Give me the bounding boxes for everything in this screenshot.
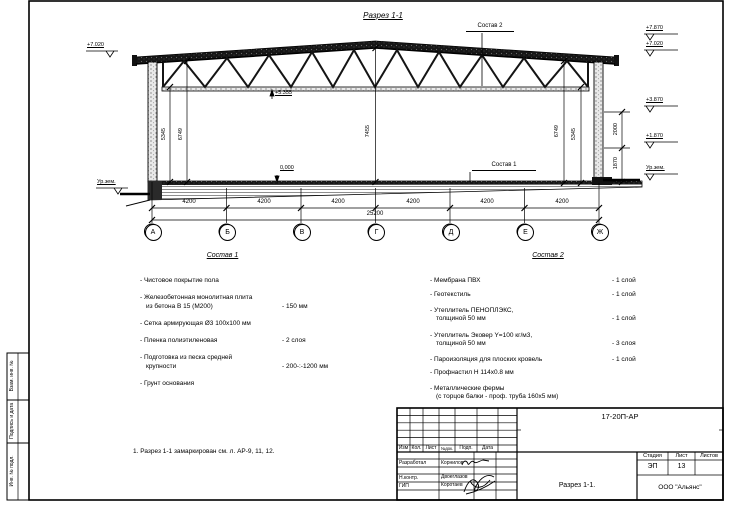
sostav2-item-line2: толщиной 50 мм: [436, 340, 486, 347]
axis-bubble-b: Б: [219, 224, 236, 241]
sostav2-item-value: - 1 слой: [612, 291, 636, 298]
dim-v-right-2: 5345: [571, 114, 577, 154]
dim-span-4: 4200: [393, 199, 433, 206]
tb-name: Коротаев: [441, 483, 463, 489]
tb-name: Двоеглазов: [441, 475, 468, 481]
sostav1-item: - Подготовка из песка средней: [140, 354, 232, 361]
axis-bubble-zh: Ж: [592, 224, 609, 241]
callout-floor-label: Состав 1: [472, 162, 536, 171]
sostav1-title: Состав 1: [150, 252, 295, 260]
sostav2-item-line2: толщиной 50 мм: [436, 315, 486, 322]
sostav2-item: - Геотекстиль: [430, 291, 471, 298]
tb-name: Корнилов: [441, 461, 463, 467]
sheet-frame: [7, 1, 723, 500]
dim-span-3: 4200: [318, 199, 358, 206]
tb-header-podp: Подп.: [455, 446, 477, 452]
dim-v-center: 7455: [365, 111, 371, 151]
tb-header-kol: Кол.: [410, 446, 423, 452]
dim-span-6: 4200: [542, 199, 582, 206]
sostav1-item-line2: крупности: [146, 363, 176, 370]
section-title: Разрез 1-1: [343, 11, 423, 20]
sostav2-item-value: - 3 слоя: [612, 340, 636, 347]
tb-role: Разработал: [399, 461, 426, 467]
sostav2-item-value: - 1 слой: [612, 315, 636, 322]
axis-bubble-v: В: [294, 224, 311, 241]
sostav2-item: - Профнастил Н 114х0.8 мм: [430, 369, 514, 376]
axis-bubble-g: Г: [368, 224, 385, 241]
tb-sheet-label: Лист: [668, 453, 695, 459]
dim-span-2: 4200: [244, 199, 284, 206]
elevation-right-4: +1.870: [646, 133, 663, 139]
frame-label-inv: Инв. № подл.: [10, 447, 16, 493]
dim-v-right-1: 6749: [554, 111, 560, 151]
axis-bubble-d: Д: [443, 224, 460, 241]
elevation-truss-bottom: +5.355: [275, 90, 292, 96]
tb-sheet-value: 13: [668, 463, 695, 471]
sostav2-item: - Утеплитель Эковер Y=100 кг/м3,: [430, 332, 532, 339]
sostav1-item-value: - 200-:-1200 мм: [282, 363, 328, 370]
elevation-right-ground: Ур.зем.: [646, 165, 665, 171]
section-drawing-linework: [0, 0, 731, 507]
sostav2-item: - Металлические фермы: [430, 385, 504, 392]
drawing-note: 1. Разрез 1-1 замаркирован см. л. АР-9, …: [133, 448, 275, 455]
frame-label-podpis: Подпись и дата: [10, 397, 16, 443]
leaders: [270, 33, 482, 182]
axis-bubble-a: А: [145, 224, 162, 241]
column-right: [594, 62, 603, 183]
tb-header-izm: Изм: [397, 446, 410, 452]
sostav2-item-value: - 1 слой: [612, 356, 636, 363]
sostav2-title: Состав 2: [478, 252, 618, 260]
tb-role: Н.контр.: [399, 476, 418, 482]
elevation-right-1: +7.870: [646, 25, 663, 31]
elevation-left-ground: Ур.зем.: [97, 179, 116, 185]
frame-label-vzam: Взам. инв. №: [10, 352, 16, 398]
doc-number: 17-20П-АР: [517, 413, 723, 422]
sostav1-item: - Грунт основания: [140, 380, 194, 387]
sostav1-item: - Сетка армирующая Ø3 100х100 мм: [140, 320, 251, 327]
elevation-floor-level: 0,000: [280, 165, 294, 171]
tb-company: ООО "Альянс": [637, 484, 723, 491]
sostav2-item: - Пароизоляция для плоских кровель: [430, 356, 542, 363]
tb-sheets-label: Листов: [695, 453, 723, 459]
sostav2-item: - Утеплитель ПЕНОПЛЭКС,: [430, 307, 513, 314]
elevation-right-3: +3.870: [646, 97, 663, 103]
dim-side-lower: 1870: [613, 143, 619, 183]
sostav1-item: - Железобетонная монолитная плита: [140, 294, 252, 301]
dim-total: 25200: [350, 211, 400, 218]
elevation-left-top: +7.020: [87, 42, 104, 48]
column-left: [148, 62, 157, 182]
sostav1-item-value: - 2 слоя: [282, 337, 306, 344]
dim-v-left-2: 6749: [178, 114, 184, 154]
tb-role: ГИП: [399, 484, 409, 490]
axis-bubble-e: Е: [517, 224, 534, 241]
tb-header-list: Лист: [423, 446, 439, 452]
sostav2-item-line2: (с торцов балки - проф. труба 160х5 мм): [436, 393, 558, 400]
tb-header-data: Дата: [477, 446, 498, 452]
tb-stage-value: ЭП: [637, 463, 668, 471]
sostav1-item-line2: из бетона В 15 (М200): [146, 303, 213, 310]
dim-span-1: 4200: [169, 199, 209, 206]
tb-drawing-title: Разрез 1-1.: [517, 482, 637, 490]
tb-stage-label: Стадия: [637, 453, 668, 459]
sostav1-item-value: - 150 мм: [282, 303, 308, 310]
dim-v-left-1: 5345: [161, 114, 167, 154]
sostav1-item: - Пленка полиэтиленовая: [140, 337, 217, 344]
sostav1-item: - Чистовое покрытие пола: [140, 277, 219, 284]
sostav2-item: - Мембрана ПВХ: [430, 277, 481, 284]
elevation-right-2: +7.020: [646, 41, 663, 47]
tb-header-ndok: №док.: [439, 447, 455, 452]
dim-span-5: 4200: [467, 199, 507, 206]
drawing-sheet: Разрез 1-1 Состав 2 Состав 1 +7.020 Ур.з…: [0, 0, 731, 507]
sostav2-item-value: - 1 слой: [612, 277, 636, 284]
callout-roof-label: Состав 2: [466, 23, 514, 32]
